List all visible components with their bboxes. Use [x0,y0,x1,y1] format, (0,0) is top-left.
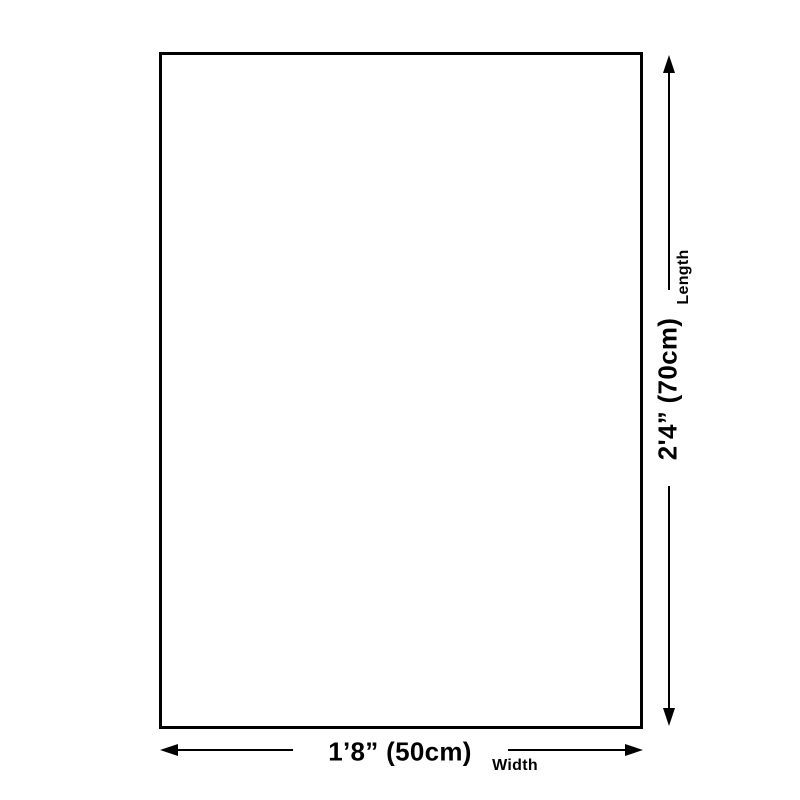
arrowhead-down-icon [663,708,675,726]
dimension-diagram: Length 2'4” (70cm) 1’8” (50cm) Width [0,0,800,800]
width-dimension-line-right [508,749,625,751]
width-dimension-line-left [178,749,293,751]
arrowhead-left-icon [160,744,178,756]
length-axis-label: Length [675,249,693,304]
width-value-label: 1’8” (50cm) [328,737,471,768]
length-dimension-line-lower [668,486,670,708]
length-value-label: 2'4” (70cm) [653,318,684,460]
product-outline-rect [159,52,643,729]
arrowhead-up-icon [663,55,675,73]
width-axis-label: Width [492,757,538,775]
length-dimension-line-upper [668,72,670,290]
arrowhead-right-icon [625,744,643,756]
